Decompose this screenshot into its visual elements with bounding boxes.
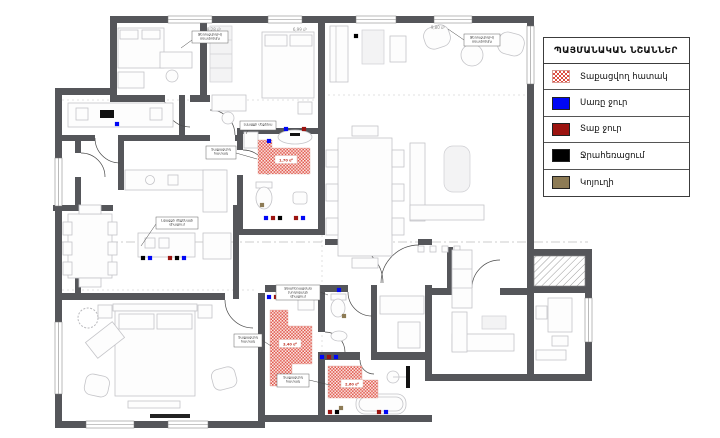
printer-block (100, 110, 114, 118)
cold-water-point (334, 355, 338, 359)
hot-water-point (328, 410, 332, 414)
cold-water-point (148, 256, 152, 260)
annotation-leader (236, 153, 257, 159)
cold-water-point (384, 410, 388, 414)
legend-label: Տաք ջուր (580, 124, 622, 134)
cold-water-point (320, 355, 324, 359)
window (434, 16, 472, 23)
cold-water-swatch (552, 97, 570, 110)
window (527, 26, 534, 84)
hot-water-swatch (552, 123, 570, 136)
heated-floor-swatch (552, 70, 570, 83)
legend-label: Տաքացվող հատակ (580, 72, 668, 82)
plant (78, 308, 98, 328)
area-label: 6,99 մ² (293, 27, 308, 32)
heated-floor-label: 3,40 մ² (283, 342, 297, 346)
hot-water-point (377, 410, 381, 414)
dining-room-furniture (63, 205, 117, 287)
heated-floor-label: 2,60 մ² (345, 382, 359, 386)
annotation-leader (181, 40, 192, 48)
cold-water-point (267, 139, 271, 143)
legend-rows: Տաքացվող հատակՍառը ջուրՏաք ջուրՋրահեռացո… (544, 64, 689, 196)
hot-water-point (168, 256, 172, 260)
legend-label: Սառը ջուր (580, 98, 627, 108)
drain-water-point (335, 410, 339, 414)
cold-water-point (115, 122, 119, 126)
legend-item: Սառը ջուր (544, 90, 689, 116)
cold-water-point (284, 127, 288, 131)
window (168, 16, 212, 23)
window (585, 298, 592, 342)
hot-water-point (327, 355, 331, 359)
window (356, 16, 396, 23)
annotation-text: Ջեռուցվող(Վ)օդափոխիչ (470, 35, 495, 43)
legend-item: Տաքացվող հատակ (544, 64, 689, 90)
legend-item: Տաք ջուր (544, 117, 689, 143)
sewer-water-point (339, 406, 343, 410)
wc-corridor-fixtures (298, 294, 424, 348)
legend-title: ՊԱՅՄԱՆԱԿԱՆ ՆՇԱՆՆԵՐ (544, 38, 689, 64)
sewer-water-point (342, 314, 346, 318)
legend-label: Ջրահեռացում (580, 151, 645, 161)
annotation-text: Լվացքի մեքենա (244, 122, 273, 126)
hot-water-point (271, 216, 275, 220)
window (86, 421, 134, 428)
window (55, 158, 62, 206)
master-bedroom-furniture (78, 304, 238, 418)
window (268, 16, 302, 23)
cold-water-point (301, 216, 305, 220)
drain-water-point (354, 34, 358, 38)
legend-item: Ջրահեռացում (544, 143, 689, 169)
legend-label: Կոյուղի (580, 178, 614, 188)
kitchen-furniture (125, 170, 231, 259)
drain-water-point (278, 216, 282, 220)
drainage-swatch (552, 149, 570, 162)
living-room-furniture (330, 23, 526, 82)
annotation-text: Ջեռուցվող(Վ)օդափոխիչ (198, 32, 223, 40)
floor-plan-page: 8,28 մ²6,99 մ²9,80 մ²1,70 մ²3,40 մ²2,60 … (0, 0, 720, 438)
cold-water-point (267, 295, 271, 299)
shaft-hatch (534, 256, 585, 286)
hot-water-point (294, 216, 298, 220)
tv-console (150, 414, 190, 418)
shower-panel (406, 366, 410, 388)
area-label: 9,80 մ² (431, 25, 446, 30)
legend-item: Կոյուղի (544, 170, 689, 196)
bedroom-a-furniture (118, 28, 192, 88)
office-room-furniture (68, 103, 173, 127)
drain-water-point (141, 256, 145, 260)
hot-water-point (302, 127, 306, 131)
drain-water-point (175, 256, 179, 260)
cold-water-point (264, 216, 268, 220)
heated-floor-label: 1,70 մ² (279, 158, 293, 162)
window (168, 421, 208, 428)
great-room-furniture (326, 126, 484, 268)
sewer-water-point (260, 203, 264, 207)
legend-box: ՊԱՅՄԱՆԱԿԱՆ ՆՇԱՆՆԵՐ Տաքացվող հատակՍառը ջո… (543, 37, 690, 197)
sewer-swatch (552, 176, 570, 189)
window (55, 322, 62, 394)
cold-water-point (182, 256, 186, 260)
cold-water-point (337, 288, 341, 292)
